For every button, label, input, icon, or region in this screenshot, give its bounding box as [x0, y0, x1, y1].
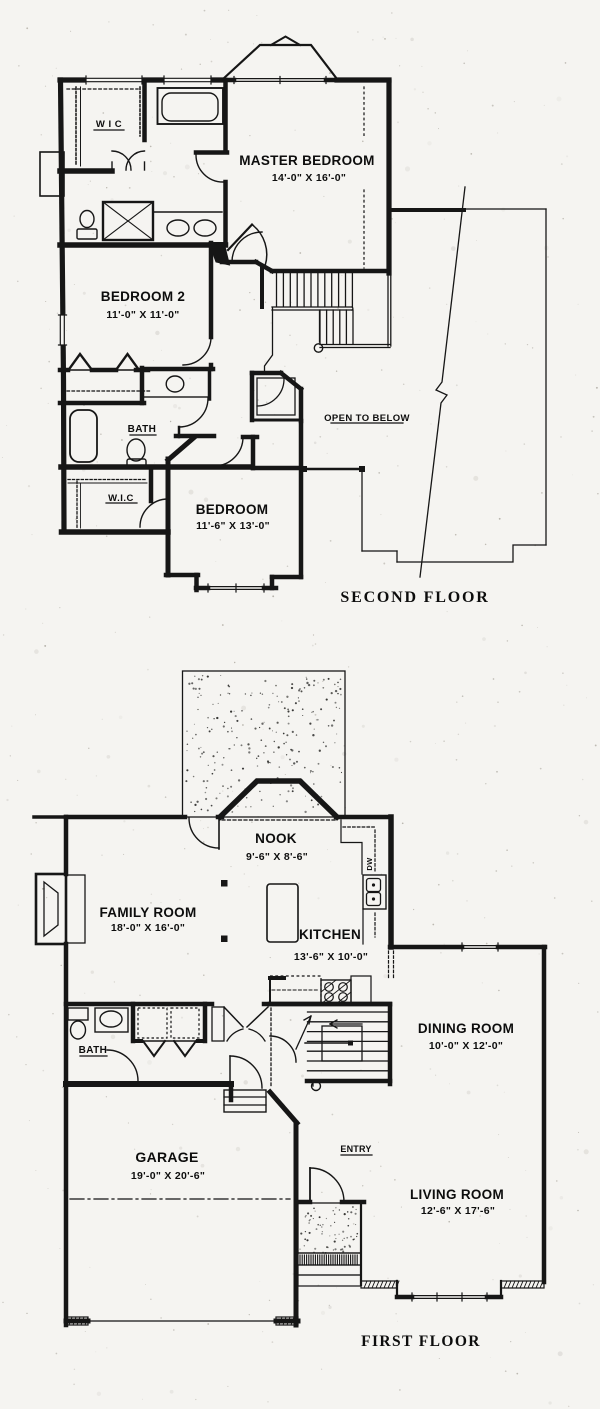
svg-text:GARAGE: GARAGE [135, 1149, 198, 1165]
svg-text:ENTRY: ENTRY [340, 1144, 371, 1154]
svg-text:NOOK: NOOK [255, 831, 297, 846]
svg-text:14'-0" X 16'-0": 14'-0" X 16'-0" [272, 172, 346, 184]
svg-text:DW: DW [365, 857, 374, 871]
svg-text:11'-6" X 13'-0": 11'-6" X 13'-0" [196, 520, 270, 532]
svg-text:FIRST FLOOR: FIRST FLOOR [361, 1333, 481, 1350]
svg-text:9'-6" X 8'-6": 9'-6" X 8'-6" [246, 851, 308, 863]
svg-text:W.I.C: W.I.C [108, 493, 134, 504]
svg-text:OPEN TO BELOW: OPEN TO BELOW [324, 413, 410, 424]
svg-text:LIVING ROOM: LIVING ROOM [410, 1187, 504, 1202]
svg-text:DINING ROOM: DINING ROOM [418, 1021, 514, 1036]
svg-text:12'-6" X 17'-6": 12'-6" X 17'-6" [421, 1205, 495, 1217]
svg-text:18'-0" X 16'-0": 18'-0" X 16'-0" [111, 922, 185, 934]
svg-text:10'-0" X 12'-0": 10'-0" X 12'-0" [429, 1040, 503, 1052]
svg-text:SECOND FLOOR: SECOND FLOOR [340, 589, 489, 606]
svg-text:BATH: BATH [128, 424, 157, 435]
svg-text:BEDROOM: BEDROOM [196, 502, 269, 517]
svg-text:19'-0" X 20'-6": 19'-0" X 20'-6" [131, 1170, 205, 1182]
svg-text:BATH: BATH [79, 1045, 108, 1056]
svg-text:11'-0" X 11'-0": 11'-0" X 11'-0" [106, 309, 179, 321]
svg-text:13'-6" X 10'-0": 13'-6" X 10'-0" [294, 951, 368, 963]
svg-text:FAMILY ROOM: FAMILY ROOM [99, 905, 196, 920]
svg-text:KITCHEN: KITCHEN [299, 927, 361, 942]
svg-text:BEDROOM 2: BEDROOM 2 [101, 289, 185, 304]
svg-text:W I C: W I C [96, 119, 122, 130]
svg-text:MASTER BEDROOM: MASTER BEDROOM [239, 153, 374, 168]
